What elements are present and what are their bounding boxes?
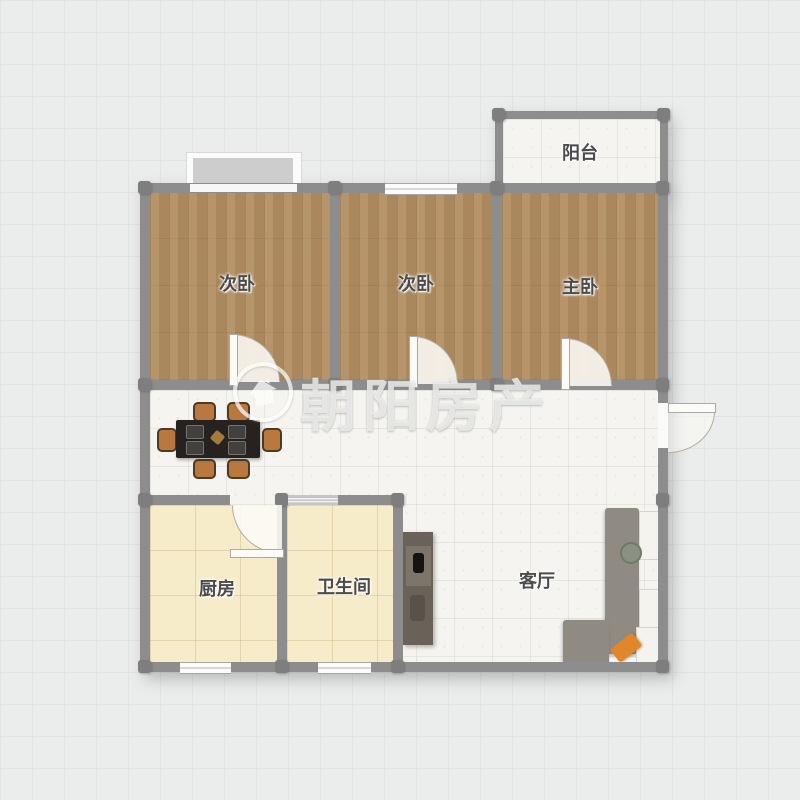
plate: [228, 425, 246, 439]
dining-chair: [193, 402, 216, 422]
wall-exterior-left: [140, 183, 150, 672]
wall-balcony-top: [495, 111, 668, 119]
wall-post: [656, 378, 669, 391]
window-kitchen: [180, 662, 231, 674]
wall-post: [391, 660, 404, 673]
door-leaf-bedroom-left: [229, 334, 238, 386]
wall-post: [391, 493, 404, 506]
wall-post: [138, 493, 151, 506]
wall-bathroom-right: [393, 495, 403, 662]
door-arc-entry: [668, 411, 715, 453]
wall-post: [490, 181, 503, 194]
wall-bedroom-bottom-c: [456, 380, 564, 390]
wall-post: [138, 181, 151, 194]
wall-bedroom-bottom-b: [278, 380, 412, 390]
room-label-living-room: 客厅: [519, 567, 555, 593]
wall-post: [656, 660, 669, 673]
dining-chair: [227, 402, 250, 422]
wall-bedrooms-divider-2: [492, 183, 502, 390]
plate: [186, 441, 204, 455]
wall-post: [657, 108, 670, 121]
wall-kitchen-top-a: [140, 495, 230, 505]
wall-post: [328, 378, 341, 391]
room-label-bedroom-middle: 次卧: [398, 270, 434, 296]
wall-post: [138, 378, 151, 391]
window-bathroom: [318, 662, 371, 674]
wall-post: [328, 181, 341, 194]
sofa-cushion: [639, 589, 660, 628]
wall-post: [656, 493, 669, 506]
potted-plant-icon: [620, 542, 642, 564]
bay-window-glass: [193, 158, 293, 184]
room-label-balcony: 阳台: [562, 139, 598, 165]
wall-bedrooms-divider-1: [330, 183, 340, 390]
wall-bedroom-bottom-a: [140, 380, 232, 390]
wall-post: [656, 181, 669, 194]
plate: [228, 441, 246, 455]
plate: [186, 425, 204, 439]
sofa-body: [605, 508, 639, 654]
dining-chair: [193, 459, 216, 479]
wall-exterior-right-upper: [658, 183, 668, 403]
door-leaf-bedroom-middle: [409, 336, 418, 388]
dining-chair: [227, 459, 250, 479]
wall-post: [490, 378, 503, 391]
entry-door-opening: [658, 403, 668, 448]
wall-exterior-right-lower: [658, 448, 668, 672]
room-label-kitchen: 厨房: [199, 575, 235, 601]
dining-chair: [262, 428, 282, 452]
room-label-bedroom-left: 次卧: [219, 270, 255, 296]
wall-post: [138, 660, 151, 673]
wall-post: [275, 660, 288, 673]
door-leaf-bedroom-master: [561, 338, 570, 390]
wall-balcony-right: [660, 111, 668, 191]
window-bay-opening: [190, 184, 297, 192]
tv-icon: [413, 553, 424, 573]
dining-chair: [157, 428, 177, 452]
sofa-chaise: [563, 620, 609, 668]
wall-post: [492, 108, 505, 121]
window-bedroom-middle: [385, 183, 457, 195]
door-leaf-kitchen: [230, 549, 284, 558]
sliding-door-bathroom: [288, 495, 338, 505]
door-leaf-entry: [668, 403, 716, 413]
room-label-bathroom: 卫生间: [317, 573, 371, 599]
cabinet-decor: [410, 595, 425, 621]
room-label-bedroom-master: 主卧: [562, 273, 598, 299]
wall-balcony-left: [495, 111, 503, 191]
sofa-cushion: [639, 511, 660, 560]
floorplan-canvas: 次卧 次卧 主卧 阳台 厨房 卫生间 客厅 朝阳房产: [0, 0, 800, 800]
